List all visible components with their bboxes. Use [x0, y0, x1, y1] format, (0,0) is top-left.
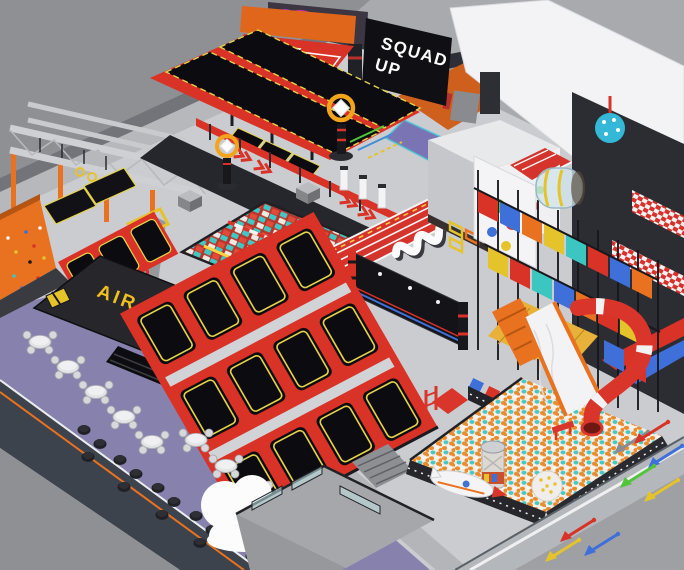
equipment	[450, 90, 480, 123]
equipment	[480, 72, 500, 114]
dotted-ball-sculpture	[532, 471, 562, 501]
park-scene: SQUAD UP	[0, 0, 684, 570]
crawl-tube	[536, 168, 585, 208]
trampoline-park-render: SQUAD UP	[0, 0, 684, 570]
